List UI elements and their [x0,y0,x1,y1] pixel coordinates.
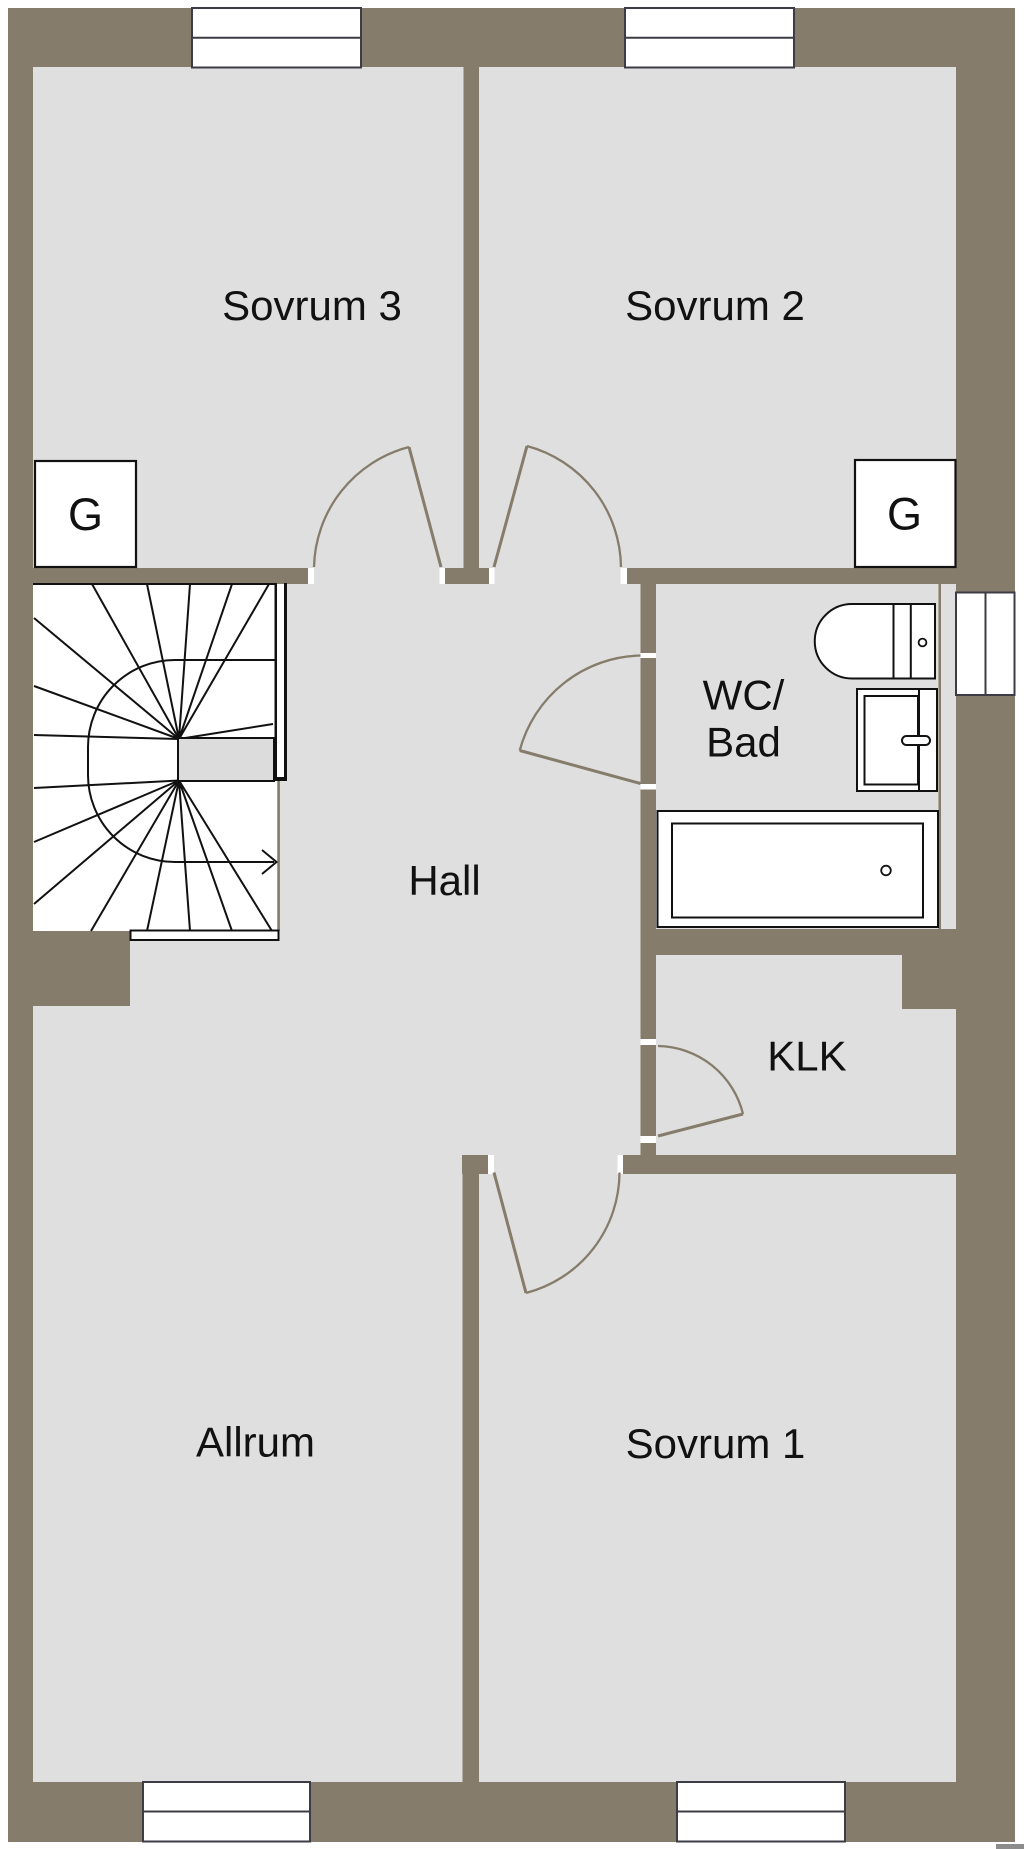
svg-text:G: G [887,489,922,540]
svg-text:Allrum: Allrum [196,1419,315,1466]
svg-text:WC/: WC/ [703,672,785,719]
svg-text:KLK: KLK [767,1033,846,1080]
svg-text:Sovrum 1: Sovrum 1 [626,1420,806,1467]
svg-text:Sovrum 2: Sovrum 2 [625,282,805,329]
svg-text:Bad: Bad [706,719,781,766]
svg-text:Hall: Hall [408,857,480,904]
svg-text:Sovrum 3: Sovrum 3 [222,282,402,329]
svg-text:G: G [68,489,103,540]
